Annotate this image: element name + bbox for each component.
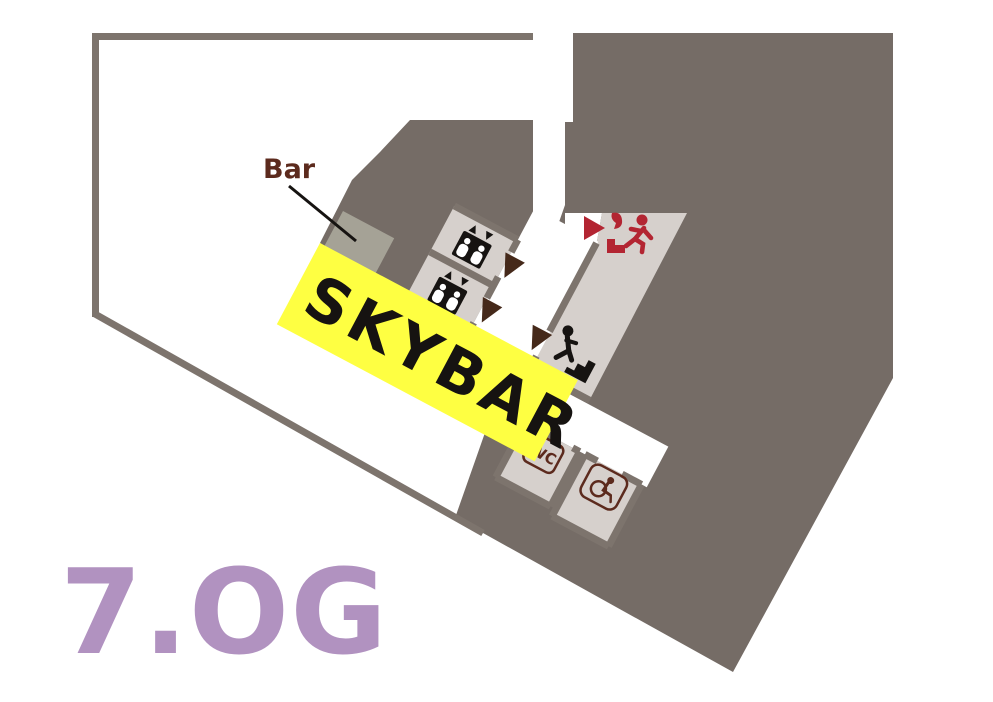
floor-plan: WC SKYBAR Bar 7.OG [0, 0, 993, 702]
floor-label: 7.OG [60, 543, 388, 681]
bar-callout-label: Bar [263, 154, 316, 185]
floor-plan-page: WC SKYBAR Bar 7.OG [0, 0, 993, 702]
